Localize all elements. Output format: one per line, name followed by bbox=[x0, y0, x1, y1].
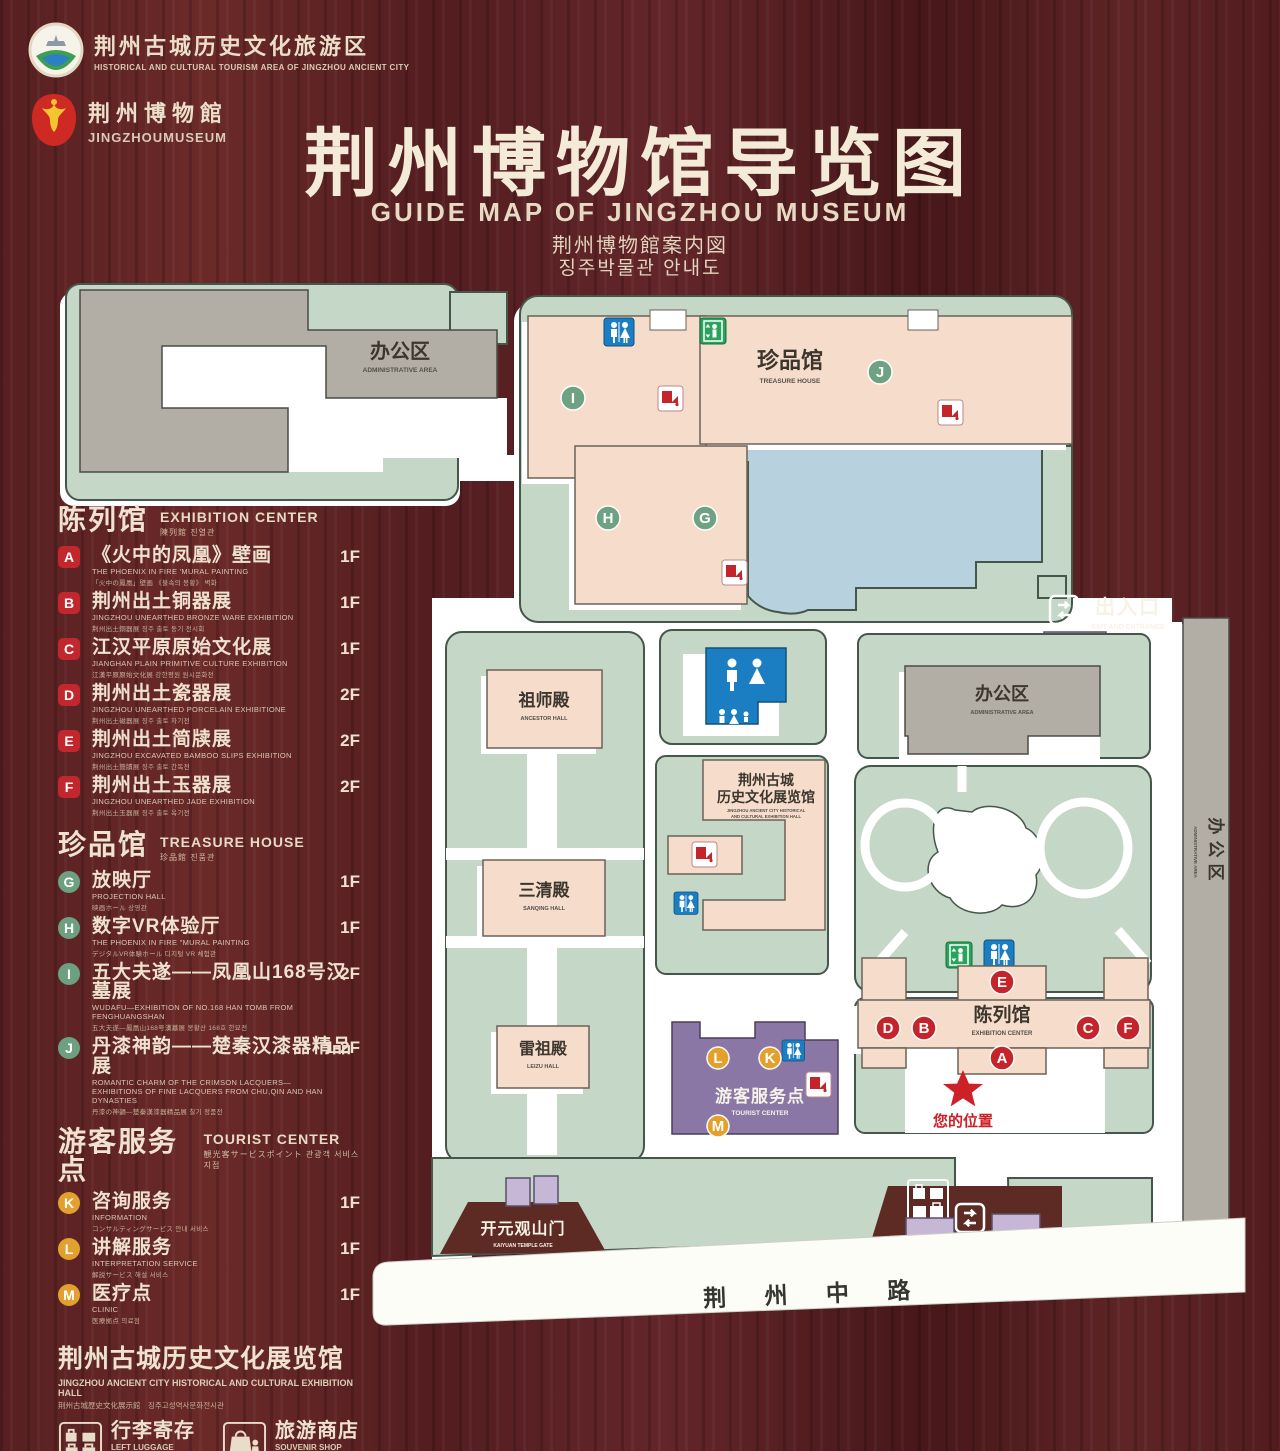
svg-text:G: G bbox=[699, 510, 711, 527]
marker-a: A bbox=[990, 1046, 1014, 1070]
marker-f-badge: F bbox=[58, 776, 80, 798]
floor-label: 1F bbox=[340, 1285, 360, 1305]
tourism-area-brand: 荆州古城历史文化旅游区 HISTORICAL AND CULTURAL TOUR… bbox=[28, 22, 409, 78]
item-sub: デジタルVR体験ホール 디지털 VR 체험관 bbox=[92, 948, 360, 958]
item-en: INTERPRETATION SERVICE bbox=[92, 1259, 360, 1268]
floor-label: 2F bbox=[340, 777, 360, 797]
item-title: 五大夫遂——凤凰山168号汉墓展 bbox=[92, 963, 360, 1003]
floor-label: 1F bbox=[340, 1193, 360, 1213]
svg-text:I: I bbox=[571, 390, 575, 407]
svg-text:C: C bbox=[1083, 1020, 1094, 1037]
floor-label: 1F bbox=[340, 639, 360, 659]
floor-label: 2F bbox=[340, 964, 360, 984]
north-restroom-block bbox=[660, 630, 826, 744]
floor-label: 1-2F bbox=[325, 1038, 360, 1058]
marker-l-badge: L bbox=[58, 1238, 80, 1260]
item-sub: 医療拠点 의료점 bbox=[92, 1315, 360, 1325]
svg-text:AND CULTURAL EXHIBITION HALL: AND CULTURAL EXHIBITION HALL bbox=[731, 814, 802, 819]
item-en: JIANGHAN PLAIN PRIMITIVE CULTURE EXHIBIT… bbox=[92, 659, 360, 668]
item-title: 江汉平原原始文化展 bbox=[92, 638, 360, 658]
section-title: 陈列馆 bbox=[58, 506, 148, 534]
page-subtitle-ko: 징주박물관 안내도 bbox=[0, 253, 1280, 280]
marker-e: E bbox=[990, 970, 1014, 994]
svg-text:开元观山门: 开元观山门 bbox=[480, 1219, 565, 1238]
hall-title: 荆州古城历史文化展览馆 bbox=[58, 1339, 360, 1375]
floor-label: 1F bbox=[340, 547, 360, 567]
legend-item-e: E 荆州出土简牍展 JINGZHOU EXCAVATED BAMBOO SLIP… bbox=[58, 730, 360, 771]
svg-text:三清殿: 三清殿 bbox=[519, 880, 571, 900]
marker-c-badge: C bbox=[58, 638, 80, 660]
item-title: 荆州出土简牍展 bbox=[92, 730, 360, 750]
icon-label: 行李寄存 bbox=[111, 1421, 195, 1441]
historical-exhibition-hall-area: 荆州古城 历史文化展览馆 JINGZHOU ANCIENT CITY HISTO… bbox=[650, 756, 828, 980]
item-en: JINGZHOU EXCAVATED BAMBOO SLIPS EXHIBITI… bbox=[92, 751, 360, 760]
svg-text:历史文化展览馆: 历史文化展览馆 bbox=[717, 789, 815, 805]
item-title: 《火中的凤凰》壁画 bbox=[92, 546, 360, 566]
svg-text:祖师殿: 祖师殿 bbox=[518, 690, 571, 710]
page-title: 荆州博物馆导览图 bbox=[0, 104, 1280, 211]
legend-item-c: C 江汉平原原始文化展 JIANGHAN PLAIN PRIMITIVE CUL… bbox=[58, 638, 360, 679]
page-subtitle-en: GUIDE MAP OF JINGZHOU MUSEUM bbox=[0, 197, 1280, 228]
svg-text:荆州古城: 荆州古城 bbox=[738, 772, 794, 788]
item-title: 荆州出土铜器展 bbox=[92, 592, 360, 612]
legend-item-i: I 五大夫遂——凤凰山168号汉墓展 WUDAFU—EXHIBITION OF … bbox=[58, 963, 360, 1033]
floor-label: 1F bbox=[340, 918, 360, 938]
svg-text:K: K bbox=[765, 1050, 776, 1067]
marker-m: M bbox=[707, 1115, 729, 1137]
svg-text:H: H bbox=[603, 510, 614, 527]
admin-strip-east: 办公区 ADMINISTRATIVE AREA bbox=[1177, 618, 1229, 1269]
item-en: THE PHOENIX IN FIRE 'MURAL PAINTING bbox=[92, 567, 360, 576]
item-en: ROMANTIC CHARM OF THE CRIMSON LACQUERS— … bbox=[92, 1078, 342, 1105]
section-title-sub: 観光客サービスポイント 관광객 서비스 지점 bbox=[204, 1149, 360, 1171]
legend: 陈列馆 EXHIBITION CENTER 陳列館 진열관 A 《火中的凤凰》壁… bbox=[58, 506, 360, 1451]
item-en: PROJECTION HALL bbox=[92, 892, 360, 901]
svg-text:TOURIST CENTER: TOURIST CENTER bbox=[732, 1110, 789, 1117]
legend-section-treasure: 珍品馆 TREASURE HOUSE 珍品館 진품관 bbox=[58, 831, 360, 863]
legend-icon-grid: 行李寄存 LEFT LUGGAGE 手荷物預かり 짐 보관 旅游商店 SOUVE… bbox=[58, 1421, 360, 1451]
item-en: WUDAFU—EXHIBITION OF NO.168 HAN TOMB FRO… bbox=[92, 1003, 360, 1021]
marker-k: K bbox=[759, 1047, 781, 1069]
marker-m-badge: M bbox=[58, 1284, 80, 1306]
tourism-area-name: 荆州古城历史文化旅游区 bbox=[94, 29, 409, 61]
legend-item-a: A 《火中的凤凰》壁画 THE PHOENIX IN FIRE 'MURAL P… bbox=[58, 546, 360, 587]
admin-area-east: 办公区 ADMINISTRATIVE AREA bbox=[852, 634, 1150, 764]
svg-text:办公区: 办公区 bbox=[975, 683, 1029, 704]
marker-c: C bbox=[1076, 1016, 1100, 1040]
svg-text:ADMINISTRATIVE AREA: ADMINISTRATIVE AREA bbox=[1193, 826, 1198, 879]
marker-b: B bbox=[912, 1016, 936, 1040]
svg-text:D: D bbox=[883, 1020, 894, 1037]
svg-text:J: J bbox=[876, 364, 884, 381]
item-en: JINGZHOU UNEARTHED JADE EXHIBITION bbox=[92, 797, 360, 806]
marker-l: L bbox=[707, 1047, 729, 1069]
svg-text:SANQING HALL: SANQING HALL bbox=[523, 906, 566, 912]
svg-text:L: L bbox=[713, 1050, 722, 1067]
tourist-center-area: L K 游客服务点 TOURIST CENTER M bbox=[666, 1022, 838, 1137]
item-sub: 荆州出土磁器展 징주 출토 자기전 bbox=[92, 715, 360, 725]
section-title: 珍品馆 bbox=[58, 831, 148, 859]
svg-text:E: E bbox=[997, 974, 1007, 991]
item-en: THE PHOENIX IN FIRE "MURAL PAINTING bbox=[92, 938, 360, 947]
marker-j: J bbox=[868, 360, 892, 384]
item-en: JINGZHOU UNEARTHED BRONZE WARE EXHIBITIO… bbox=[92, 613, 360, 622]
legend-left-luggage: 行李寄存 LEFT LUGGAGE 手荷物預かり 짐 보관 bbox=[58, 1421, 222, 1451]
marker-a-badge: A bbox=[58, 546, 80, 568]
legend-item-b: B 荆州出土铜器展 JINGZHOU UNEARTHED BRONZE WARE… bbox=[58, 592, 360, 633]
svg-text:B: B bbox=[919, 1020, 930, 1037]
marker-i: I bbox=[561, 386, 585, 410]
svg-text:ANCESTOR HALL: ANCESTOR HALL bbox=[521, 716, 569, 722]
treasure-house-area: 珍品馆 TREASURE HOUSE I J H G bbox=[514, 296, 1072, 629]
treasure-label: 珍品馆 bbox=[757, 348, 823, 373]
floor-label: 2F bbox=[340, 731, 360, 751]
svg-text:TREASURE HOUSE: TREASURE HOUSE bbox=[760, 378, 821, 385]
legend-section-exhibition: 陈列馆 EXHIBITION CENTER 陳列館 진열관 bbox=[58, 506, 360, 538]
icon-label-en: SOUVENIR SHOP bbox=[275, 1443, 359, 1451]
left-luggage-icon bbox=[58, 1421, 103, 1451]
hall-title-sub: 荆州古城歴史文化展示館 징주고성역사문화전시관 bbox=[58, 1400, 360, 1411]
item-sub: 丹漆の神韻—楚秦漢漆器精品展 칠기 정품전 bbox=[92, 1106, 360, 1116]
marker-h: H bbox=[596, 506, 620, 530]
legend-section-tourist: 游客服务点 TOURIST CENTER 観光客サービスポイント 관광객 서비스… bbox=[58, 1128, 360, 1184]
admin-label-nw: 办公区 bbox=[370, 339, 430, 363]
marker-f: F bbox=[1116, 1016, 1140, 1040]
legend-item-m: M 医疗点 CLINIC 医療拠点 의료점 1F bbox=[58, 1284, 360, 1325]
marker-d: D bbox=[876, 1016, 900, 1040]
legend-souvenir-shop: 旅游商店 SOUVENIR SHOP 観光商店 기념품 상점 bbox=[222, 1421, 386, 1451]
hall-title-en: JINGZHOU ANCIENT CITY HISTORICAL AND CUL… bbox=[58, 1378, 360, 1398]
guide-map-poster: 办公区 ADMINISTRATIVE AREA 珍品馆 TREASURE HOU… bbox=[0, 0, 1280, 1451]
item-sub: 五大夫遂—鳳凰山168号漢墓展 봉황산 168호 한묘전 bbox=[92, 1022, 360, 1032]
svg-text:游客服务点: 游客服务点 bbox=[715, 1086, 805, 1106]
floor-label: 1F bbox=[340, 593, 360, 613]
section-title-sub: 陳列館 진열관 bbox=[160, 527, 319, 538]
marker-d-badge: D bbox=[58, 684, 80, 706]
floor-label: 1F bbox=[340, 1239, 360, 1259]
item-en: CLINIC bbox=[92, 1305, 360, 1314]
item-title: 丹漆神韵——楚秦汉漆器精品展 bbox=[92, 1037, 360, 1077]
floor-label: 1F bbox=[340, 872, 360, 892]
item-sub: 映画ホール 상영관 bbox=[92, 902, 360, 912]
section-title-en: EXHIBITION CENTER bbox=[160, 509, 319, 525]
item-title: 讲解服务 bbox=[92, 1238, 360, 1258]
marker-k-badge: K bbox=[58, 1192, 80, 1214]
admin-area-northwest: 办公区 ADMINISTRATIVE AREA bbox=[60, 284, 507, 506]
item-sub: コンサルティングサービス 안내 서비스 bbox=[92, 1223, 360, 1233]
marker-i-badge: I bbox=[58, 963, 80, 985]
section-title-en: TREASURE HOUSE bbox=[160, 834, 305, 850]
marker-b-badge: B bbox=[58, 592, 80, 614]
legend-item-h: H 数字VR体验厅 THE PHOENIX IN FIRE "MURAL PAI… bbox=[58, 917, 360, 958]
item-title: 数字VR体验厅 bbox=[92, 917, 360, 937]
svg-text:您的位置: 您的位置 bbox=[932, 1112, 993, 1130]
icon-label: 旅游商店 bbox=[275, 1421, 359, 1441]
exhibition-center-area: E 陈列馆 EXHIBITION CENTER D B C F A 您的位置 bbox=[849, 940, 1153, 1139]
legend-item-f: F 荆州出土玉器展 JINGZHOU UNEARTHED JADE EXHIBI… bbox=[58, 776, 360, 817]
svg-text:F: F bbox=[1123, 1020, 1132, 1037]
marker-j-badge: J bbox=[58, 1037, 80, 1059]
tourism-area-name-en: HISTORICAL AND CULTURAL TOURISM AREA OF … bbox=[94, 63, 409, 72]
item-en: INFORMATION bbox=[92, 1213, 360, 1222]
section-title: 游客服务点 bbox=[58, 1128, 192, 1184]
svg-text:出入口: 出入口 bbox=[1095, 596, 1161, 619]
section-title-sub: 珍品館 진품관 bbox=[160, 852, 305, 863]
marker-g-badge: G bbox=[58, 871, 80, 893]
halls-column: 祖师殿 ANCESTOR HALL 三清殿 SANQING HALL 雷祖殿 L… bbox=[440, 632, 644, 1168]
item-title: 咨询服务 bbox=[92, 1192, 360, 1212]
svg-text:EXHIBITION CENTER: EXHIBITION CENTER bbox=[972, 1031, 1033, 1037]
legend-item-l: L 讲解服务 INTERPRETATION SERVICE 解説サービス 해설 … bbox=[58, 1238, 360, 1279]
item-sub: 解説サービス 해설 서비스 bbox=[92, 1269, 360, 1279]
item-sub: 「火中の鳳凰」壁画 《불속의 봉황》 벽화 bbox=[92, 577, 360, 587]
tourism-area-logo-icon bbox=[28, 22, 84, 78]
souvenir-shop-icon bbox=[222, 1421, 267, 1451]
svg-text:M: M bbox=[712, 1118, 725, 1135]
section-title-en: TOURIST CENTER bbox=[204, 1131, 360, 1147]
svg-text:JINGZHOU ANCIENT CITY HISTORIC: JINGZHOU ANCIENT CITY HISTORICAL bbox=[727, 808, 806, 813]
item-sub: 江漢平原原始文化展 강한평원 원시문화전 bbox=[92, 669, 360, 679]
icon-label-en: LEFT LUGGAGE bbox=[111, 1443, 195, 1451]
item-sub: 荆州出土玉器展 징주 출토 옥기전 bbox=[92, 807, 360, 817]
legend-item-g: G 放映厅 PROJECTION HALL 映画ホール 상영관 1F bbox=[58, 871, 360, 912]
svg-text:陈列馆: 陈列馆 bbox=[973, 1003, 1030, 1026]
item-title: 医疗点 bbox=[92, 1284, 360, 1304]
legend-item-k: K 咨询服务 INFORMATION コンサルティングサービス 안내 서비스 1… bbox=[58, 1192, 360, 1233]
svg-text:KAIYUAN TEMPLE GATE: KAIYUAN TEMPLE GATE bbox=[493, 1243, 553, 1249]
svg-text:ADMINISTRATIVE AREA: ADMINISTRATIVE AREA bbox=[970, 710, 1033, 716]
svg-text:雷祖殿: 雷祖殿 bbox=[519, 1039, 568, 1058]
hall-title-block: 荆州古城历史文化展览馆 JINGZHOU ANCIENT CITY HISTOR… bbox=[58, 1339, 360, 1411]
item-en: JINGZHOU UNEARTHED PORCELAIN EXHIBITIONE bbox=[92, 705, 360, 714]
marker-e-badge: E bbox=[58, 730, 80, 752]
legend-item-j: J 丹漆神韵——楚秦汉漆器精品展 ROMANTIC CHARM OF THE C… bbox=[58, 1037, 360, 1116]
floor-label: 2F bbox=[340, 685, 360, 705]
svg-text:EXIT AND ENTRANCE: EXIT AND ENTRANCE bbox=[1091, 624, 1165, 631]
svg-text:ADMINISTRATIVE AREA: ADMINISTRATIVE AREA bbox=[363, 367, 438, 374]
item-title: 荆州出土玉器展 bbox=[92, 776, 360, 796]
svg-text:办公区: 办公区 bbox=[1206, 818, 1226, 887]
legend-item-d: D 荆州出土瓷器展 JINGZHOU UNEARTHED PORCELAIN E… bbox=[58, 684, 360, 725]
marker-g: G bbox=[693, 506, 717, 530]
item-title: 荆州出土瓷器展 bbox=[92, 684, 360, 704]
item-sub: 荆州出土銅器展 징주 출토 동기 전시회 bbox=[92, 623, 360, 633]
svg-text:A: A bbox=[997, 1050, 1008, 1067]
item-sub: 荆州出土簡牘展 징주 출토 간독전 bbox=[92, 761, 360, 771]
svg-text:LEIZU HALL: LEIZU HALL bbox=[527, 1064, 560, 1070]
item-title: 放映厅 bbox=[92, 871, 360, 891]
marker-h-badge: H bbox=[58, 917, 80, 939]
